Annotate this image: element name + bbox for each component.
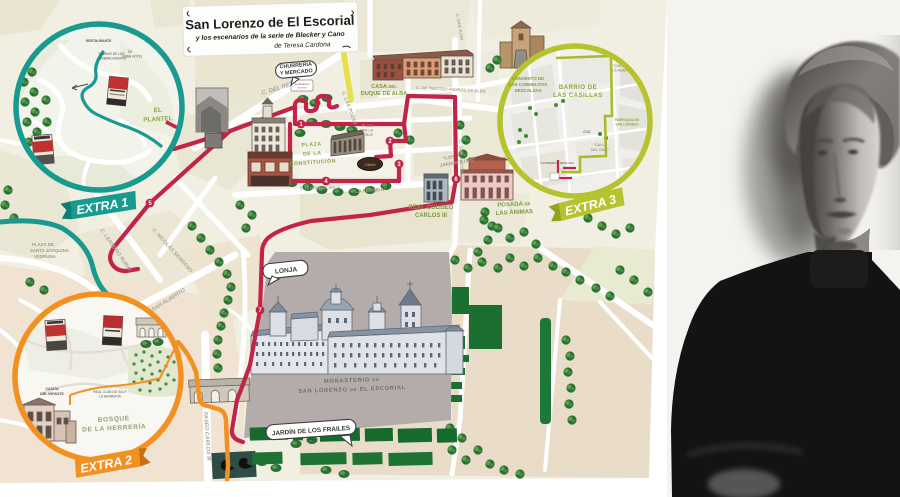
svg-text:REAL CLUB DE GOLF: REAL CLUB DE GOLF <box>93 390 127 394</box>
svg-text:EL: EL <box>154 107 163 114</box>
svg-text:SAN LORENZO: SAN LORENZO <box>615 122 639 126</box>
svg-text:REAL COLISEO: REAL COLISEO <box>409 205 454 211</box>
svg-text:CRUZ: CRUZ <box>363 133 374 137</box>
svg-text:LA HERRERÍA: LA HERRERÍA <box>99 395 122 399</box>
svg-text:"CAMINO DE LOS: "CAMINO DE LOS <box>98 52 124 56</box>
svg-text:DEL CINE": DEL CINE" <box>591 148 610 152</box>
svg-text:CARLOS III: CARLOS III <box>415 213 447 219</box>
svg-text:DUQUE DE ALBA: DUQUE DE ALBA <box>361 91 407 97</box>
svg-text:DESCALZAS: DESCALZAS <box>515 88 542 93</box>
svg-text:CINE: CINE <box>583 130 591 134</box>
svg-text:LAS CASILLAS: LAS CASILLAS <box>553 93 603 99</box>
svg-text:RESTAURANTE: RESTAURANTE <box>86 39 112 43</box>
svg-text:PARROQUIA DE: PARROQUIA DE <box>615 118 639 122</box>
svg-text:CASITA: CASITA <box>45 387 59 391</box>
svg-text:CONVENTO DE: CONVENTO DE <box>512 76 544 81</box>
svg-text:PLAZA DE: PLAZA DE <box>32 242 54 247</box>
svg-text:La Estación: La Estación <box>295 82 310 86</box>
svg-text:DE: DE <box>128 50 132 54</box>
svg-text:LAS CARMELITAS: LAS CARMELITAS <box>509 82 548 87</box>
svg-text:churrería: churrería <box>297 87 307 90</box>
svg-text:GRAN HOTEL: GRAN HOTEL <box>122 55 143 59</box>
svg-text:PLAZA: PLAZA <box>362 124 374 128</box>
svg-text:BARRIO DE: BARRIO DE <box>559 85 597 91</box>
svg-text:SANTA JOAQUINA: SANTA JOAQUINA <box>30 248 70 253</box>
svg-text:DEL INFANTE: DEL INFANTE <box>40 392 64 396</box>
svg-text:VEDRUNA: VEDRUNA <box>34 254 57 259</box>
svg-text:"CALLE: "CALLE <box>593 143 607 147</box>
svg-text:C. SAN ANTÓN: C. SAN ANTÓN <box>458 140 465 174</box>
svg-text:DE LA: DE LA <box>363 128 374 132</box>
svg-text:Cafetín: Cafetín <box>365 163 376 167</box>
svg-text:CHURRERÍA Y MERCADO: CHURRERÍA Y MERCADO <box>540 161 575 165</box>
